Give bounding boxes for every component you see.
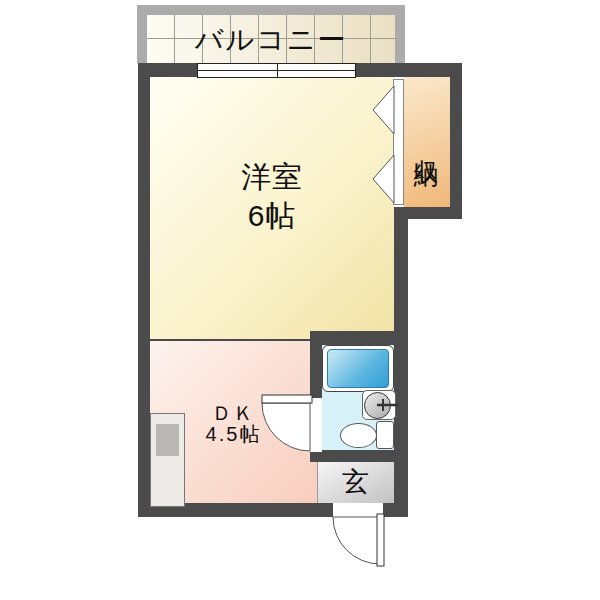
bifold-door-icon bbox=[373, 86, 394, 134]
bath-door-leaf bbox=[262, 395, 312, 403]
living-room-size: 6帖 bbox=[150, 196, 394, 235]
entrance-door-leaf bbox=[377, 514, 384, 566]
closet-label: 収納 bbox=[404, 88, 450, 200]
door-overlay bbox=[0, 0, 600, 600]
entrance-label: 玄 bbox=[317, 464, 394, 500]
dk-name: ＤＫ bbox=[150, 403, 317, 424]
dk-label: ＤＫ 4.5帖 bbox=[150, 403, 317, 445]
living-room-name: 洋室 bbox=[150, 157, 394, 196]
entrance-door-gap bbox=[333, 503, 383, 517]
floor-plan: バルコニー 洋室 6帖 ＤＫ 4.5帖 収納 玄 bbox=[0, 0, 600, 600]
living-room-label: 洋室 6帖 bbox=[150, 157, 394, 235]
entrance-door-swing-arc bbox=[333, 517, 380, 564]
dk-size: 4.5帖 bbox=[150, 424, 317, 445]
balcony-label: バルコニー bbox=[147, 21, 395, 59]
